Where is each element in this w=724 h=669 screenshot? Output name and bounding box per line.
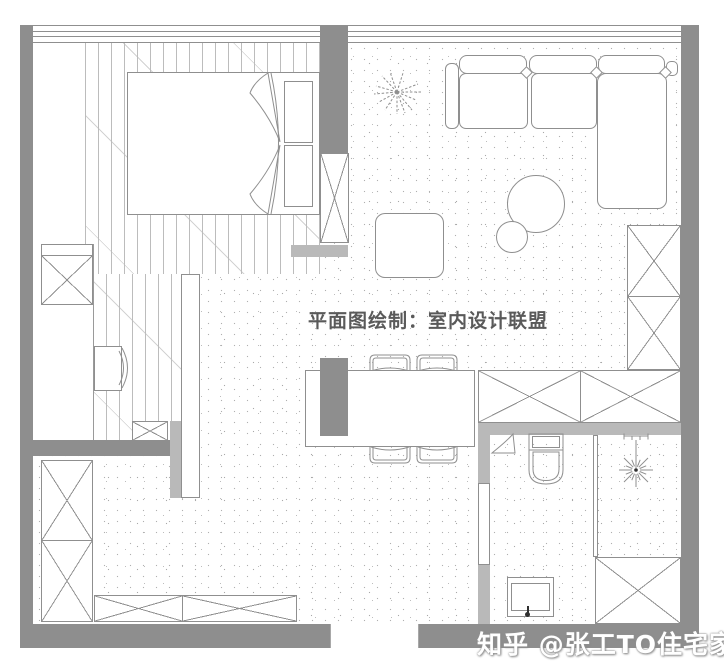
sofa-back-cushion xyxy=(459,55,527,74)
dining-chair-icon xyxy=(367,352,413,372)
balcony-door-opening xyxy=(330,624,419,648)
closet-niche-upper xyxy=(33,43,85,244)
toilet-icon xyxy=(526,430,566,486)
closet-cabinet xyxy=(41,255,93,305)
dining-chair-icon xyxy=(414,352,460,372)
bed-pillow xyxy=(284,81,313,143)
dining-chair-icon xyxy=(367,446,413,466)
bed-foot-ledge xyxy=(291,245,348,257)
wardrobe-left-upper xyxy=(41,460,93,541)
bed-pillow xyxy=(284,145,313,207)
zhihu-watermark: 知乎 @张工TO住宅家具 xyxy=(477,625,724,661)
bath-top-cabinet-left xyxy=(478,370,581,423)
wardrobe-left-lower xyxy=(41,540,93,622)
sofa-seat-cushion xyxy=(531,73,597,129)
partition-wall xyxy=(181,274,200,498)
sofa-back-cushion xyxy=(529,55,597,74)
bath-divider-wall xyxy=(593,435,598,557)
wall-left xyxy=(20,25,33,648)
wall-pillar-top xyxy=(320,25,348,153)
sink-faucet-dot xyxy=(525,612,530,617)
hall-small-cabinet xyxy=(132,421,168,441)
sofa-chaise xyxy=(597,73,667,209)
column-side-cabinet xyxy=(320,153,349,243)
wall-column-dining xyxy=(320,358,348,436)
dining-chair-icon xyxy=(414,446,460,466)
sink-basin xyxy=(511,583,550,611)
sofa-back-cushion xyxy=(598,55,665,74)
bottom-cabinet-left xyxy=(94,595,183,622)
partition-end-strip xyxy=(170,421,181,498)
wall-right xyxy=(681,25,699,648)
wall-interior-left xyxy=(33,440,170,456)
floor-plan: 平面图绘制：室内设计联盟 知乎 @张工TO住宅家具 xyxy=(0,0,724,669)
side-table xyxy=(375,213,444,278)
bath-top-cabinet-right xyxy=(580,370,681,423)
right-wall-cabinet-upper xyxy=(627,225,681,297)
plan-caption: 平面图绘制：室内设计联盟 xyxy=(308,306,548,333)
sofa-seat-cushion xyxy=(459,73,528,129)
window-top-left xyxy=(33,25,320,43)
corner-shelf-icon xyxy=(489,432,517,456)
wall-bottom-left xyxy=(20,624,330,648)
bath-door-opening xyxy=(478,483,490,565)
plant-icon xyxy=(372,70,424,116)
shower-tray xyxy=(595,557,681,624)
window-top-right xyxy=(348,25,681,43)
shower-head-icon xyxy=(612,430,660,492)
bottom-cabinet-right xyxy=(182,595,297,622)
coffee-table-small xyxy=(496,221,528,253)
sofa-armrest-left xyxy=(445,63,459,129)
right-wall-cabinet-lower xyxy=(627,296,681,370)
bath-wall-left-lower xyxy=(478,565,490,624)
desk-chair-icon xyxy=(118,344,138,392)
